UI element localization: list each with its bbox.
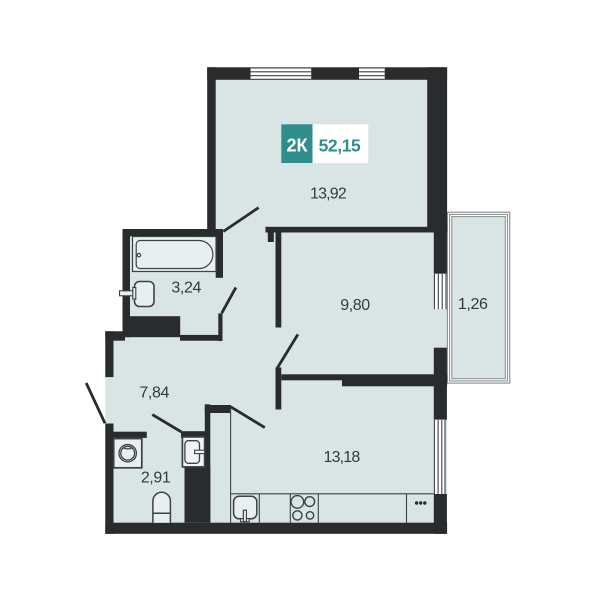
- svg-text:3,24: 3,24: [171, 280, 201, 297]
- svg-text:13,92: 13,92: [310, 185, 347, 202]
- svg-text:1,26: 1,26: [458, 296, 488, 313]
- svg-text:2К: 2К: [287, 135, 309, 155]
- svg-text:7,84: 7,84: [139, 385, 169, 402]
- svg-text:2,91: 2,91: [141, 470, 171, 487]
- svg-text:9,80: 9,80: [340, 297, 370, 314]
- svg-text:52,15: 52,15: [319, 135, 361, 155]
- svg-text:13,18: 13,18: [323, 449, 360, 466]
